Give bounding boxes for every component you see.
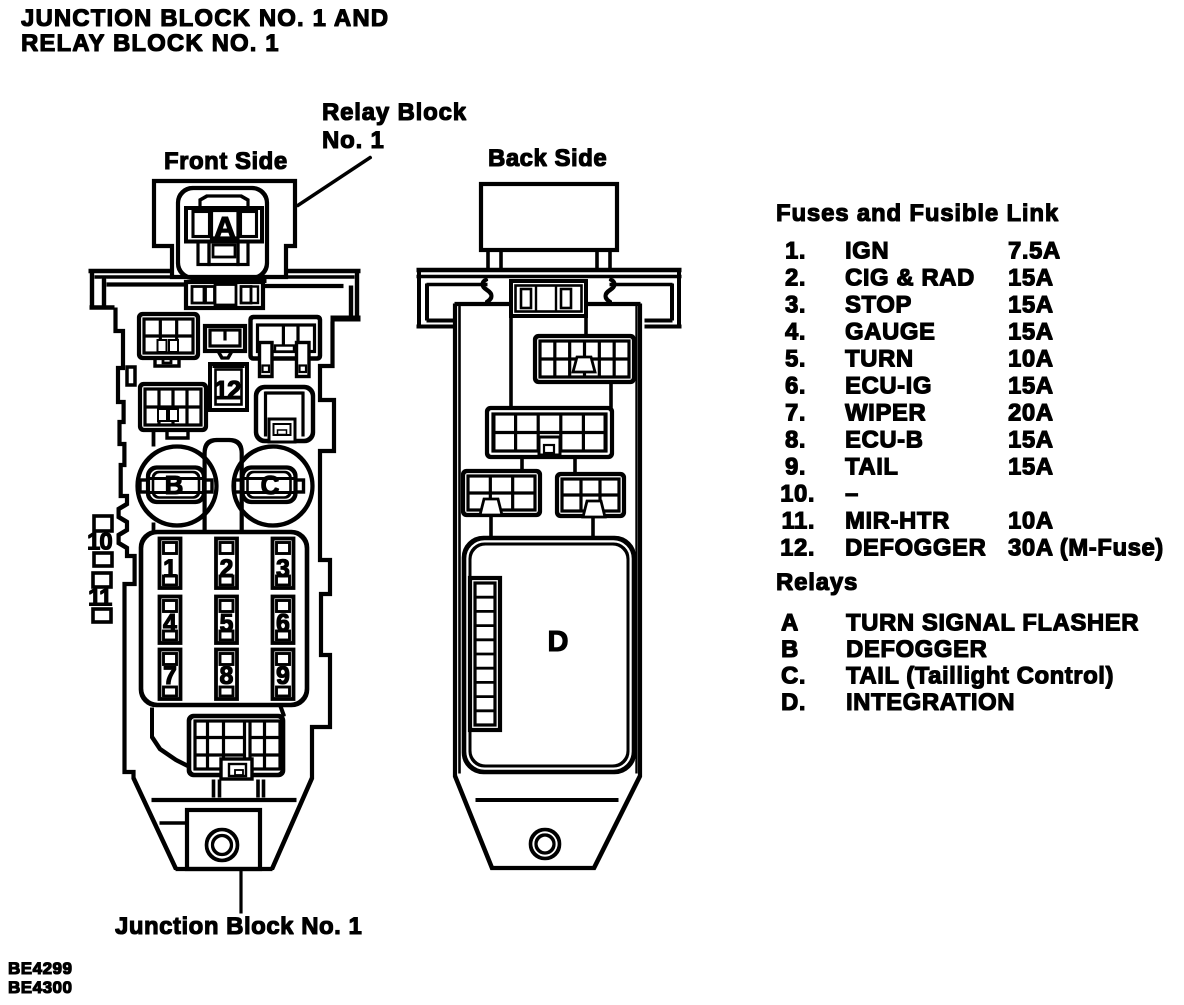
svg-text:1.: 1. bbox=[785, 238, 806, 265]
svg-text:TAIL (Taillight Control): TAIL (Taillight Control) bbox=[846, 663, 1114, 690]
svg-text:ECU-IG: ECU-IG bbox=[845, 373, 932, 400]
svg-text:D.: D. bbox=[781, 689, 806, 716]
svg-text:D: D bbox=[548, 626, 569, 658]
svg-text:RELAY BLOCK NO. 1: RELAY BLOCK NO. 1 bbox=[21, 30, 280, 57]
svg-text:7.: 7. bbox=[785, 400, 806, 427]
svg-text:10A: 10A bbox=[1008, 508, 1054, 535]
svg-text:ECU-B: ECU-B bbox=[845, 427, 924, 454]
svg-text:20A: 20A bbox=[1008, 400, 1054, 427]
svg-text:5.: 5. bbox=[785, 346, 806, 373]
svg-text:8: 8 bbox=[220, 662, 234, 690]
svg-text:10A: 10A bbox=[1008, 346, 1054, 373]
svg-text:10: 10 bbox=[87, 529, 112, 556]
svg-text:STOP: STOP bbox=[845, 292, 912, 319]
svg-text:11.: 11. bbox=[781, 508, 815, 535]
svg-text:CIG & RAD: CIG & RAD bbox=[845, 265, 975, 292]
svg-text:12.: 12. bbox=[780, 535, 815, 562]
svg-text:7: 7 bbox=[163, 662, 177, 690]
svg-text:6: 6 bbox=[276, 610, 290, 638]
svg-text:10.: 10. bbox=[780, 481, 815, 508]
svg-text:3: 3 bbox=[276, 555, 290, 583]
svg-text:A: A bbox=[781, 610, 799, 637]
svg-text:IGN: IGN bbox=[845, 238, 889, 265]
svg-text:TAIL: TAIL bbox=[845, 454, 899, 481]
svg-text:9.: 9. bbox=[785, 454, 806, 481]
svg-text:4: 4 bbox=[163, 610, 177, 638]
svg-text:4.: 4. bbox=[785, 319, 806, 346]
svg-text:6.: 6. bbox=[785, 373, 806, 400]
svg-text:Relays: Relays bbox=[776, 569, 858, 596]
svg-text:15A: 15A bbox=[1008, 373, 1054, 400]
svg-text:TURN: TURN bbox=[845, 346, 914, 373]
svg-text:15A: 15A bbox=[1008, 265, 1054, 292]
svg-text:C.: C. bbox=[781, 663, 806, 690]
svg-text:15A: 15A bbox=[1008, 292, 1054, 319]
svg-text:30A (M-Fuse): 30A (M-Fuse) bbox=[1008, 535, 1164, 562]
svg-text:WIPER: WIPER bbox=[845, 400, 926, 427]
svg-text:7.5A: 7.5A bbox=[1008, 238, 1061, 265]
svg-text:DEFOGGER: DEFOGGER bbox=[845, 535, 986, 562]
svg-text:INTEGRATION: INTEGRATION bbox=[846, 689, 1015, 716]
svg-text:11: 11 bbox=[88, 585, 112, 612]
svg-text:B: B bbox=[165, 470, 184, 500]
svg-text:JUNCTION BLOCK NO. 1 AND: JUNCTION BLOCK NO. 1 AND bbox=[21, 5, 389, 32]
svg-text:1: 1 bbox=[163, 555, 177, 583]
svg-text:8.: 8. bbox=[785, 427, 806, 454]
svg-text:2: 2 bbox=[220, 555, 234, 583]
svg-text:5: 5 bbox=[220, 610, 234, 638]
svg-text:C: C bbox=[261, 470, 280, 500]
svg-text:B: B bbox=[781, 636, 799, 663]
svg-text:No. 1: No. 1 bbox=[322, 127, 385, 154]
svg-text:BE4299: BE4299 bbox=[8, 959, 72, 978]
svg-text:DEFOGGER: DEFOGGER bbox=[846, 636, 987, 663]
svg-text:12: 12 bbox=[214, 375, 241, 405]
svg-text:15A: 15A bbox=[1008, 319, 1054, 346]
svg-text:–: – bbox=[845, 481, 859, 508]
svg-text:9: 9 bbox=[276, 662, 290, 690]
svg-text:Relay Block: Relay Block bbox=[322, 99, 467, 126]
svg-text:2.: 2. bbox=[785, 265, 806, 292]
svg-text:BE4300: BE4300 bbox=[8, 978, 72, 997]
svg-text:3.: 3. bbox=[785, 292, 806, 319]
svg-text:15A: 15A bbox=[1008, 427, 1054, 454]
svg-text:Junction Block No. 1: Junction Block No. 1 bbox=[115, 913, 362, 940]
svg-text:Front Side: Front Side bbox=[164, 148, 288, 175]
svg-text:15A: 15A bbox=[1008, 454, 1054, 481]
svg-text:TURN SIGNAL FLASHER: TURN SIGNAL FLASHER bbox=[846, 610, 1139, 637]
svg-text:Fuses and Fusible Link: Fuses and Fusible Link bbox=[776, 200, 1059, 227]
svg-text:GAUGE: GAUGE bbox=[845, 319, 936, 346]
svg-text:Back Side: Back Side bbox=[488, 145, 607, 172]
svg-text:MIR-HTR: MIR-HTR bbox=[845, 508, 950, 535]
svg-text:A: A bbox=[214, 212, 236, 245]
